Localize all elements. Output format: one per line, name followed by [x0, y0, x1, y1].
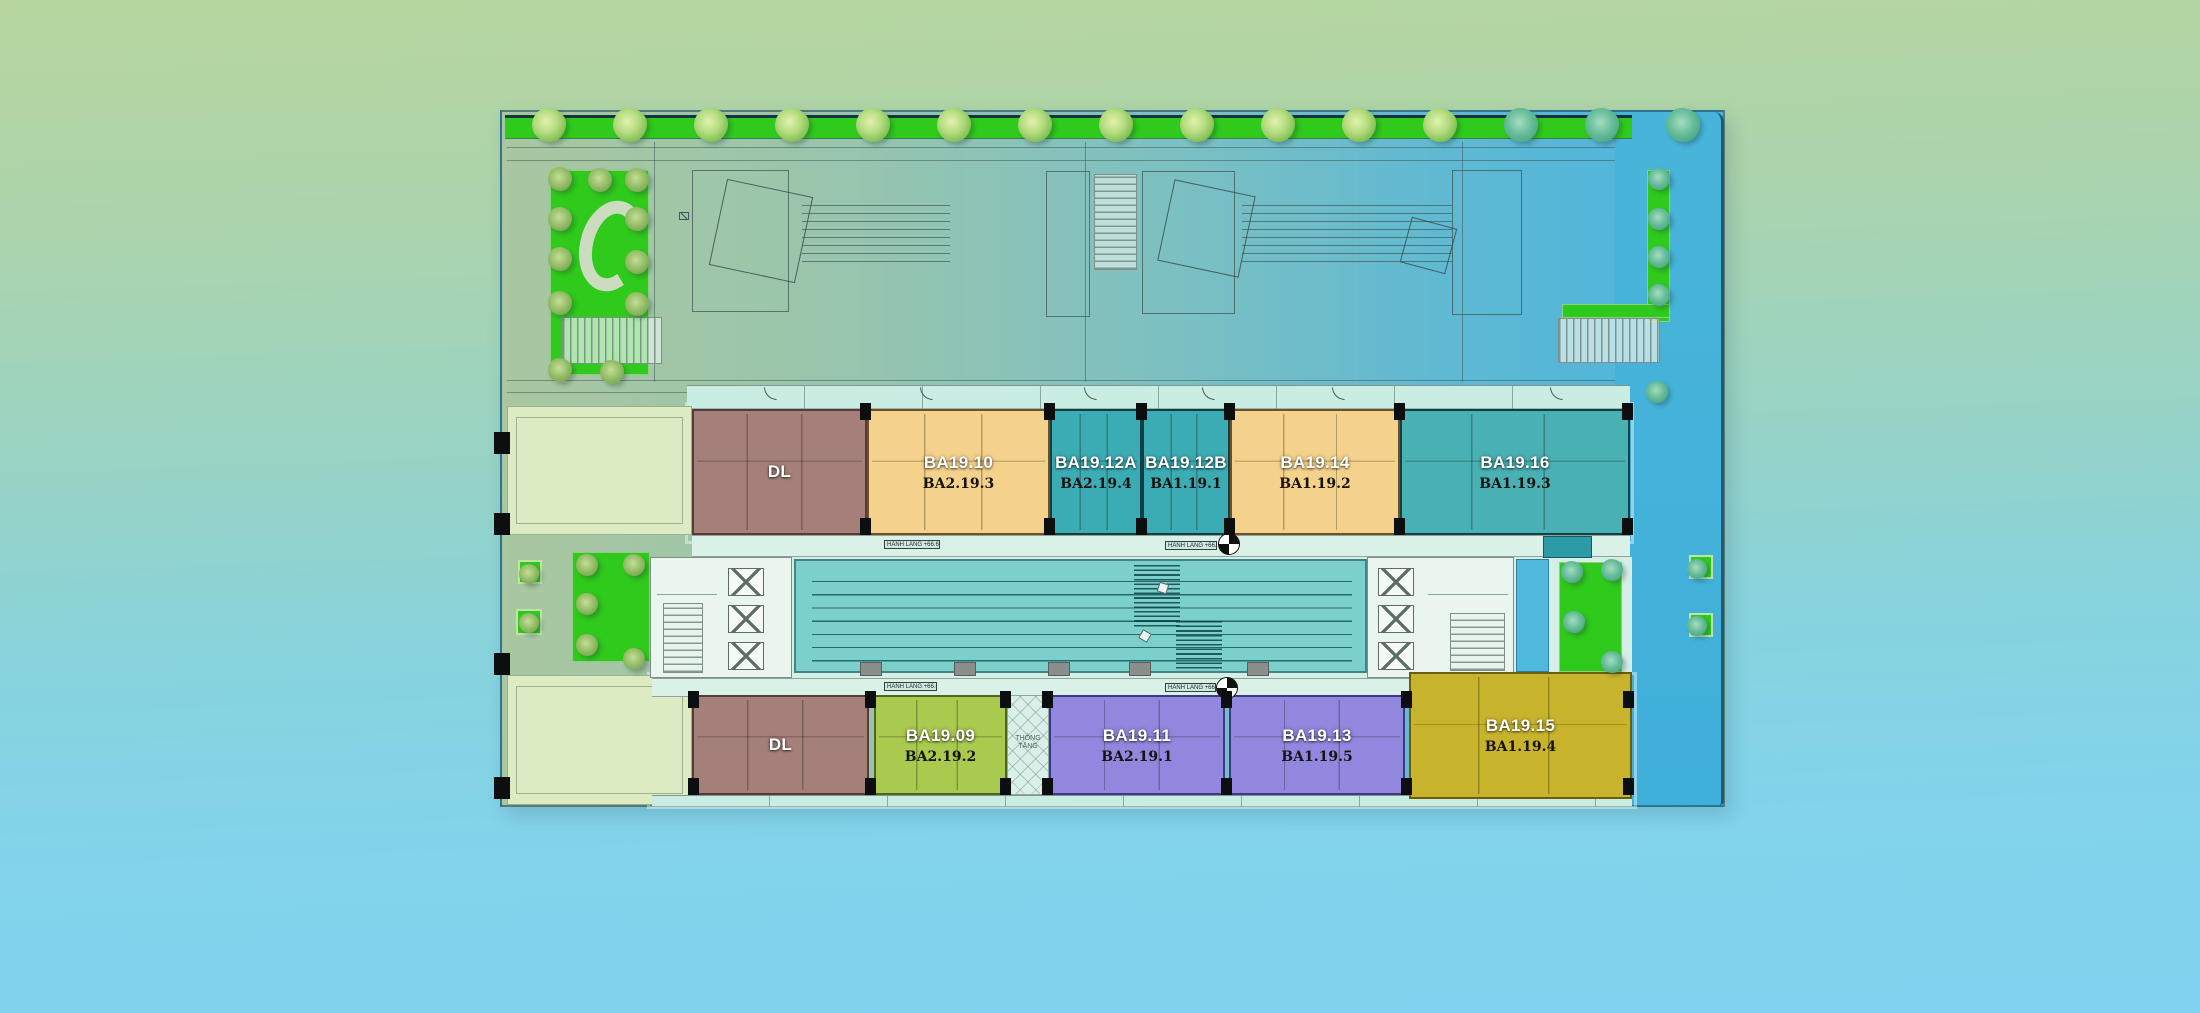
tree-icon	[519, 564, 539, 584]
tree-icon	[625, 292, 649, 316]
terrace-pale-upper	[507, 406, 692, 535]
unit-BA19-10[interactable]: BA19.10 BA2.19.3	[867, 409, 1050, 535]
unit-code: BA2.19.2	[905, 749, 976, 765]
tree-icon	[1563, 611, 1585, 633]
pool-steps	[1134, 565, 1180, 627]
unit-name: DL	[768, 462, 791, 482]
column-block	[1622, 403, 1633, 420]
unit-code: BA1.19.4	[1485, 739, 1556, 755]
tree-icon	[1423, 108, 1457, 142]
tree-icon	[1648, 168, 1670, 190]
column-block	[1623, 778, 1634, 795]
column-block	[1221, 778, 1232, 795]
tree-icon	[1261, 108, 1295, 142]
column-block	[1042, 778, 1053, 795]
column-block	[1042, 691, 1053, 708]
pool-lanes	[812, 569, 1352, 664]
tree-icon	[1342, 108, 1376, 142]
tree-icon	[548, 291, 572, 315]
tree-icon	[548, 358, 572, 382]
tree-icon	[1018, 108, 1052, 142]
pool-start-block	[1247, 662, 1269, 676]
corridor-dim-label: HÀNH LANG +66.650	[1165, 683, 1216, 692]
column-block	[1401, 691, 1412, 708]
column-block	[1394, 518, 1405, 535]
column-block	[1401, 778, 1412, 795]
unit-DL-bottom[interactable]: DL	[692, 695, 869, 795]
unit-BA19-15[interactable]: BA19.15 BA1.19.4	[1409, 672, 1632, 799]
column-block	[1394, 403, 1405, 420]
unit-name: DL	[769, 735, 792, 755]
top-planting-strip	[505, 115, 1632, 139]
corridor-top	[692, 535, 1630, 557]
column-block	[1000, 778, 1011, 795]
core-stair	[663, 603, 703, 673]
tree-icon	[532, 108, 566, 142]
tree-icon	[625, 207, 649, 231]
column-block	[1000, 691, 1011, 708]
column-block	[860, 403, 871, 420]
tree-icon	[775, 108, 809, 142]
pool-start-block	[1048, 662, 1070, 676]
column-block	[1136, 518, 1147, 535]
unit-code: BA1.19.2	[1279, 476, 1350, 492]
tree-icon	[625, 168, 649, 192]
column-block	[1224, 518, 1235, 535]
column-block	[494, 432, 510, 454]
tree-icon	[1648, 246, 1670, 268]
column-block	[688, 778, 699, 795]
unit-name: BA19.10	[924, 453, 993, 473]
unit-code: BA1.19.1	[1150, 476, 1221, 492]
terrace-line	[507, 160, 1615, 161]
tree-icon	[519, 613, 539, 633]
terrace-line	[507, 147, 1615, 148]
tree-icon	[548, 247, 572, 271]
tree-icon	[1099, 108, 1133, 142]
unit-BA19-09[interactable]: BA19.09 BA2.19.2	[874, 695, 1007, 795]
column-block	[494, 777, 510, 799]
column-block	[865, 778, 876, 795]
core-line	[1428, 594, 1508, 595]
tree-icon	[600, 360, 624, 384]
void-label: THÔNG TẦNG	[1008, 735, 1048, 751]
skylight	[1157, 179, 1255, 277]
tree-icon	[1504, 108, 1538, 142]
unit-DL-top[interactable]: DL	[692, 409, 867, 535]
balcony-band	[687, 385, 1630, 409]
garden-stair	[562, 317, 662, 364]
tree-icon	[1601, 651, 1623, 673]
terrace-court	[1452, 170, 1522, 315]
tree-icon	[1687, 559, 1707, 579]
tree-icon	[1687, 616, 1707, 636]
elevator-icon	[1378, 568, 1414, 596]
elevator-icon	[728, 605, 764, 633]
pool-start-block	[1129, 662, 1151, 676]
unit-code: BA2.19.3	[923, 476, 994, 492]
entry-vestibule	[1543, 536, 1592, 558]
survey-marker-icon	[1218, 533, 1240, 555]
unit-BA19-13[interactable]: BA19.13 BA1.19.5	[1229, 695, 1405, 795]
unit-BA19-14[interactable]: BA19.14 BA1.19.2	[1230, 409, 1400, 535]
tree-icon	[694, 108, 728, 142]
unit-name: BA19.12B	[1145, 453, 1227, 473]
terrace-court	[1046, 171, 1090, 317]
terrace-stair	[1094, 174, 1137, 270]
column-block	[1044, 518, 1055, 535]
core-left	[650, 557, 792, 678]
tree-icon	[623, 648, 645, 670]
tree-icon	[588, 168, 612, 192]
column-block	[1136, 403, 1147, 420]
tree-icon	[1648, 284, 1670, 306]
unit-code: BA2.19.4	[1060, 476, 1131, 492]
tree-icon	[576, 593, 598, 615]
pool-steps	[1176, 621, 1222, 669]
floor-plan: THÔNG TẦNG DL BA19.10 BA2.19.3 BA19.12A …	[500, 110, 1725, 807]
column-block	[860, 518, 871, 535]
roof-garden-band	[1562, 304, 1670, 318]
louver-lines	[802, 205, 950, 262]
core-stair	[1450, 613, 1505, 671]
terrace-stair	[1558, 318, 1660, 363]
unit-BA19-11[interactable]: BA19.11 BA2.19.1	[1049, 695, 1225, 795]
unit-code: BA2.19.1	[1101, 749, 1172, 765]
lap-pool	[794, 559, 1367, 673]
skylight	[709, 179, 813, 283]
column-block	[1044, 403, 1055, 420]
unit-name: BA19.12A	[1055, 453, 1137, 473]
pool-start-block	[954, 662, 976, 676]
tree-icon	[548, 167, 572, 191]
column-block	[1623, 691, 1634, 708]
core-line	[657, 594, 717, 595]
column-block	[494, 653, 510, 675]
elevator-icon	[1378, 605, 1414, 633]
tree-icon	[1585, 108, 1619, 142]
unit-BA19-12B[interactable]: BA19.12B BA1.19.1	[1142, 409, 1230, 535]
unit-name: BA19.09	[906, 726, 975, 746]
pool-start-block	[860, 662, 882, 676]
column-block	[1221, 691, 1232, 708]
plunge-pool	[1516, 559, 1549, 672]
column-block	[865, 691, 876, 708]
elevator-icon	[1378, 642, 1414, 670]
unit-code: BA1.19.5	[1281, 749, 1352, 765]
vent-symbol	[679, 212, 689, 220]
unit-name: BA19.16	[1480, 453, 1549, 473]
tree-icon	[625, 250, 649, 274]
unit-code: BA1.19.3	[1479, 476, 1550, 492]
tree-icon	[623, 554, 645, 576]
tree-icon	[1561, 561, 1583, 583]
elevator-icon	[728, 568, 764, 596]
column-block	[494, 513, 510, 535]
column-block	[688, 691, 699, 708]
unit-name: BA19.14	[1280, 453, 1349, 473]
tree-icon	[1601, 559, 1623, 581]
tree-icon	[1646, 381, 1668, 403]
tree-icon	[937, 108, 971, 142]
tree-icon	[1180, 108, 1214, 142]
tree-icon	[613, 108, 647, 142]
unit-BA19-12A[interactable]: BA19.12A BA2.19.4	[1050, 409, 1142, 535]
terrace-line	[507, 380, 1615, 381]
tree-icon	[1648, 208, 1670, 230]
unit-name: BA19.11	[1103, 726, 1171, 746]
elevator-icon	[728, 642, 764, 670]
corridor-dim-label: HÀNH LANG +66.650	[1165, 541, 1217, 550]
tree-icon	[576, 634, 598, 656]
tree-icon	[548, 207, 572, 231]
tree-icon	[856, 108, 890, 142]
corridor-dim-label: HÀNH LANG +66.650	[884, 540, 940, 549]
unit-name: BA19.15	[1486, 716, 1555, 736]
column-block	[1622, 518, 1633, 535]
corridor-dim-label: HÀNH LANG +66.650	[884, 682, 937, 691]
tree-icon	[576, 554, 598, 576]
core-right	[1367, 557, 1514, 678]
unit-name: BA19.13	[1282, 726, 1351, 746]
unit-BA19-16[interactable]: BA19.16 BA1.19.3	[1400, 409, 1630, 535]
column-block	[1224, 403, 1235, 420]
tree-icon	[1666, 108, 1700, 142]
